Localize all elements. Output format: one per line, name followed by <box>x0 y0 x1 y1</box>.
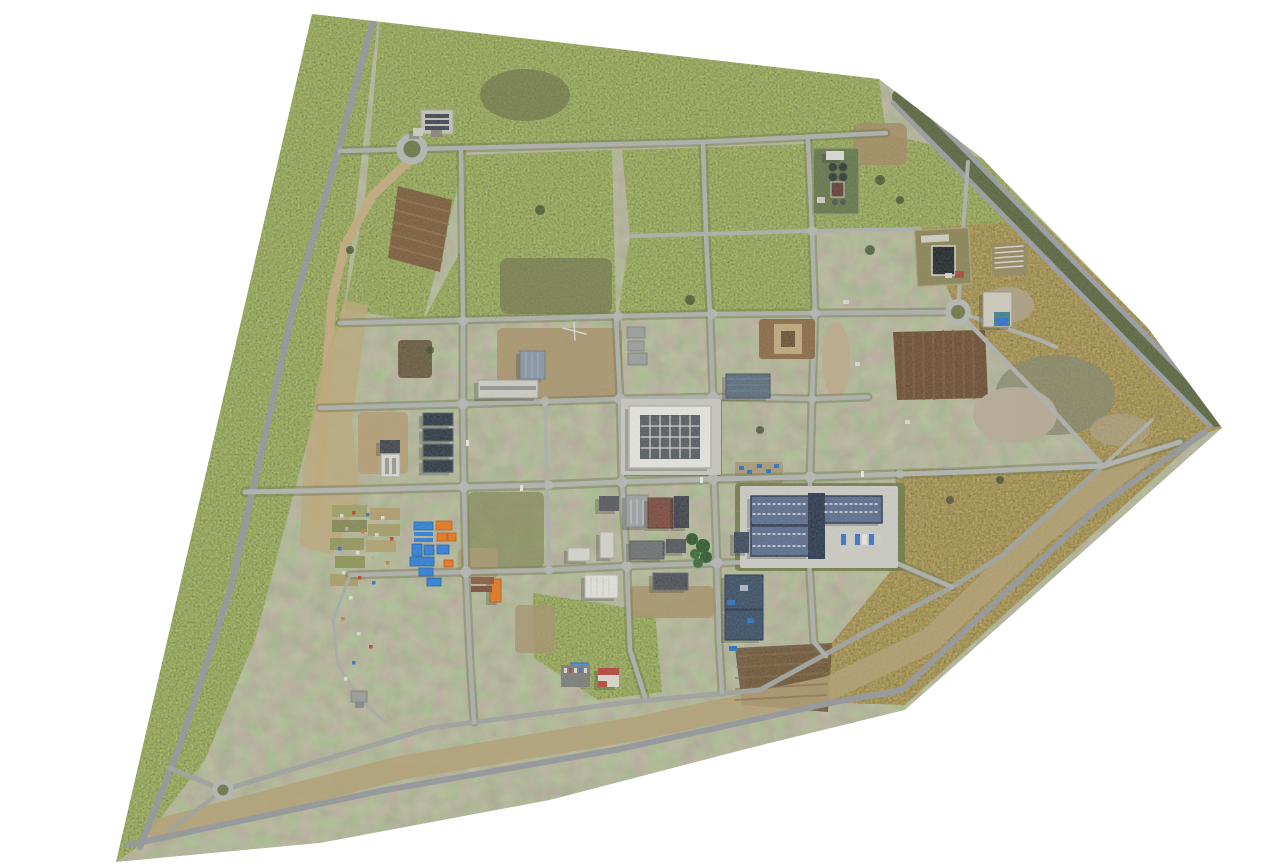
orthophoto-map <box>0 0 1266 868</box>
overlay <box>0 0 1266 868</box>
map-root <box>0 0 1266 868</box>
page <box>0 0 1266 868</box>
photo-grain <box>0 0 1266 868</box>
